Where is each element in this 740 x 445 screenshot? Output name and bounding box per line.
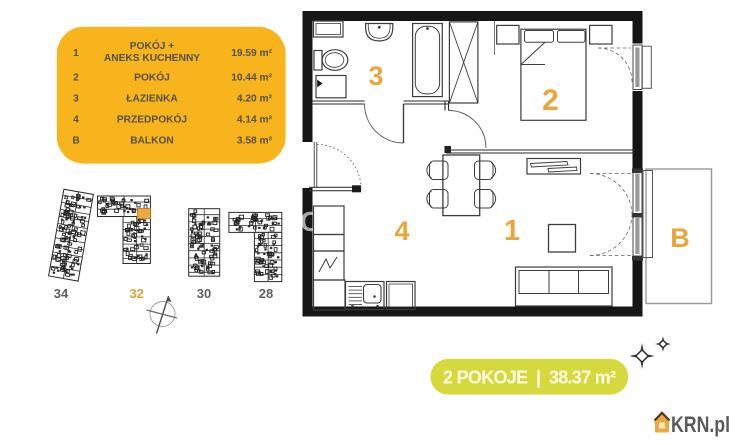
svg-text:4: 4 (394, 216, 409, 246)
svg-text:2: 2 (73, 73, 79, 84)
svg-text:PRZEDPOKÓJ: PRZEDPOKÓJ (117, 113, 187, 126)
svg-text:BALKON: BALKON (130, 136, 174, 147)
svg-text:3.58 m²: 3.58 m² (237, 136, 273, 147)
svg-text:2: 2 (542, 84, 559, 117)
svg-text:19.59 m²: 19.59 m² (231, 48, 272, 59)
svg-text:4.20 m²: 4.20 m² (237, 94, 273, 105)
svg-text:32: 32 (129, 286, 143, 301)
svg-text:B: B (670, 223, 690, 253)
svg-text:POKÓJ +: POKÓJ + (130, 39, 174, 52)
svg-text:ŁAZIENKA: ŁAZIENKA (126, 94, 178, 105)
svg-text:2 POKOJE | 38.37 m²: 2 POKOJE | 38.37 m² (443, 368, 616, 388)
svg-text:ANEKS KUCHENNY: ANEKS KUCHENNY (104, 53, 200, 64)
svg-text:POKÓJ: POKÓJ (134, 71, 170, 84)
svg-text:1: 1 (73, 48, 79, 59)
svg-text:4: 4 (73, 115, 79, 126)
svg-text:B: B (72, 136, 79, 147)
svg-text:3: 3 (73, 94, 79, 105)
svg-text:34: 34 (54, 286, 69, 301)
svg-text:3: 3 (368, 61, 383, 91)
svg-text:10.44 m²: 10.44 m² (231, 73, 272, 84)
svg-text:30: 30 (197, 286, 211, 301)
svg-text:4.14 m²: 4.14 m² (237, 115, 273, 126)
svg-text:1: 1 (504, 215, 520, 247)
svg-text:KRN.pl: KRN.pl (671, 412, 730, 437)
svg-text:28: 28 (259, 286, 273, 301)
